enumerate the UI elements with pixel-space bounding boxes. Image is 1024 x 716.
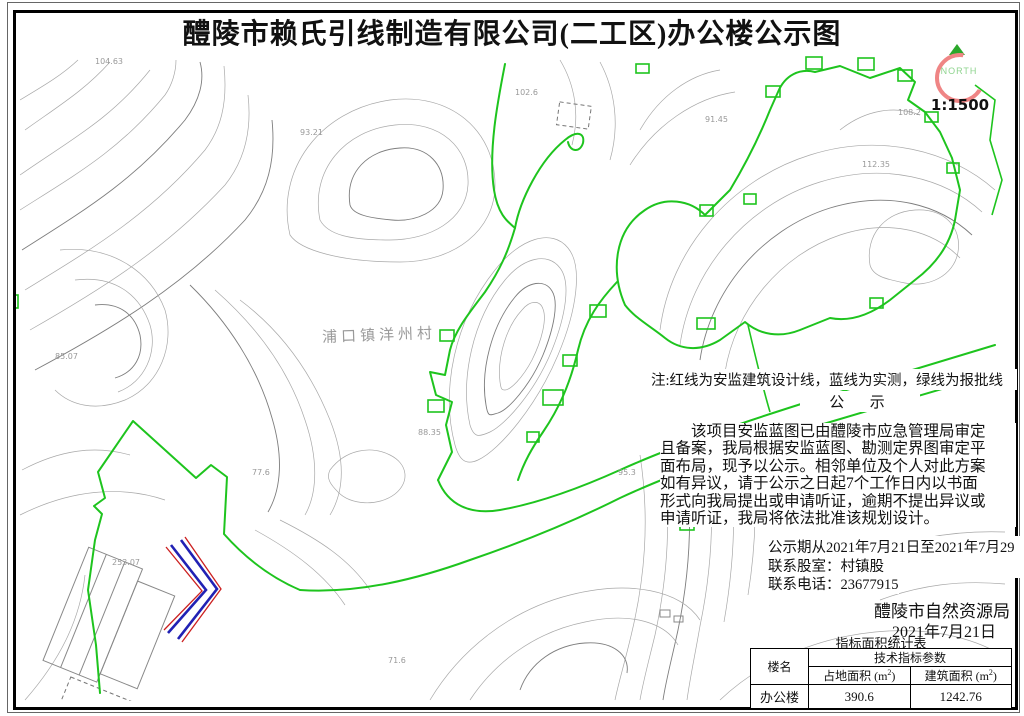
paren: ) (993, 669, 997, 683)
elevation-label: 91.45 (705, 115, 728, 124)
elevation-label: 112.35 (862, 160, 890, 169)
contact-phone: 联系电话：23677915 (768, 573, 899, 594)
notice-paragraph-line: 申请听证，我局将依法批准该规划设计。 (660, 510, 1016, 527)
paren: ) (891, 669, 895, 683)
elevation-label: 85.07 (55, 352, 78, 361)
elevation-label: 88.35 (418, 428, 441, 437)
elevation-label: 104.63 (95, 57, 123, 66)
village-label: 浦口镇洋州村 (322, 322, 437, 347)
notice-paragraph-line: 面布局，现予以公示。相邻单位及个人对此方案 (660, 458, 1016, 475)
notice-paragraph-line: 且备案，我局根据安监蓝图、勘测定界图审定平 (660, 440, 1016, 457)
col-header-floor-area: 建筑面积 (m2) (910, 667, 1012, 685)
elevation-label: 108.2 (898, 108, 921, 117)
col-header-footprint: 占地面积 (m2) (809, 667, 911, 685)
notice-paragraph-line: 如有异议，请于公示之日起7个工作日内以书面 (660, 475, 1016, 492)
elevation-label: 71.6 (388, 656, 406, 665)
notice-paragraph-line: 形式向我局提出或申请听证，逾期不提出异议或 (660, 493, 1016, 510)
map-scale: 1:1500 (925, 96, 995, 114)
area-statistics-table: 楼名 技术指标参数 占地面积 (m2) 建筑面积 (m2) 办公楼 390.6 … (750, 648, 1012, 709)
notice-heading: 公 示 (800, 391, 920, 412)
building-footprints (31, 547, 183, 716)
elevation-label: 77.6 (252, 468, 270, 477)
elevation-label: 95.3 (618, 468, 636, 477)
col-header-building: 楼名 (751, 649, 809, 685)
public-notice-plan-sheet: { "title": "醴陵市赖氏引线制造有限公司(二工区)办公楼公示图", "… (0, 0, 1024, 716)
sheet-title: 醴陵市赖氏引线制造有限公司(二工区)办公楼公示图 (0, 12, 1024, 52)
table-row: 办公楼 390.6 1242.76 (751, 685, 1012, 709)
notice-paragraph: 该项目安监蓝图已由醴陵市应急管理局审定 且备案，我局根据安监蓝图、勘测定界图审定… (660, 423, 1016, 527)
col-header-params: 技术指标参数 (809, 649, 1012, 667)
elevation-label: 93.21 (300, 128, 323, 137)
elevation-label: 102.6 (515, 88, 538, 97)
cell-footprint-value: 390.6 (809, 685, 911, 709)
cell-building-name: 办公楼 (751, 685, 809, 709)
floor-area-label: 建筑面积 (m (925, 669, 989, 683)
compass-north-label: NORTH (937, 66, 981, 76)
notice-paragraph-line: 该项目安监蓝图已由醴陵市应急管理局审定 (660, 423, 1016, 440)
legend-note: 注:红线为安监建筑设计线，蓝线为实测，绿线为报批线 (651, 369, 1017, 390)
elevation-label: 253.07 (112, 558, 140, 567)
office-building-outline (164, 537, 221, 642)
cell-floor-area-value: 1242.76 (910, 685, 1012, 709)
footprint-label: 占地面积 (m (823, 669, 887, 683)
